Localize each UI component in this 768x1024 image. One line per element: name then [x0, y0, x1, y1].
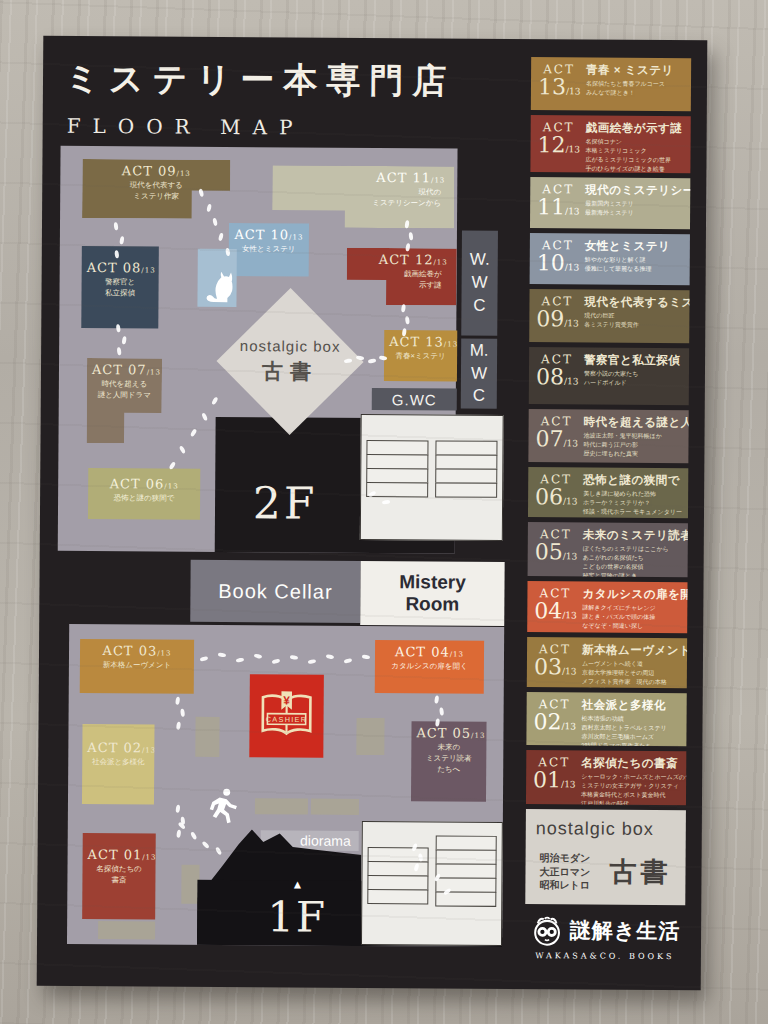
act-name: 名探偵たちの書斎	[87, 864, 150, 886]
sidebar-act-panel-03: ACT0313新本格ムーヴメントムーヴメントへ続く道京都大学推理研とその周辺メフ…	[527, 637, 687, 688]
logo-name: 謎解き生活	[570, 916, 681, 945]
nostalgic-box-label: nostalgic box	[240, 337, 341, 355]
footprint-icon	[175, 696, 180, 704]
act-number: ACT1213	[537, 120, 579, 169]
floor-2-void	[215, 417, 456, 554]
footprint-icon	[344, 658, 353, 664]
footprint-icon	[122, 336, 127, 345]
map-area-act03: ACT 0313 新本格ムーヴメント	[80, 639, 194, 694]
footprint-icon	[175, 804, 180, 812]
footprint-icon	[379, 355, 388, 360]
sidebar-act-panel-05: ACT0513未来のミステリ読者たちへぼくたちのミステリはここからあこがれの名探…	[528, 522, 688, 577]
footprint-icon	[411, 843, 418, 852]
footprint-icon	[176, 829, 181, 837]
footprint-icon	[272, 658, 281, 664]
floor-1-label: 1F	[247, 892, 347, 942]
map-area-act10-annex	[197, 249, 236, 307]
entrance-arrow-icon: ▲	[247, 877, 347, 892]
act-name: 社会派と多様化	[87, 757, 149, 768]
act-number: ACT0413	[534, 586, 576, 629]
act-description: 戯画絵巻が示す謎名探偵コナン本格ミステリコミック広がるミステリコミックの世界手の…	[585, 120, 683, 170]
running-person-icon	[203, 784, 243, 826]
act-label: ACT 1013	[234, 227, 304, 242]
store-logo: 謎解き生活 WAKASA&CO. BOOKS	[525, 913, 685, 961]
floor-2-label: 2F	[225, 477, 345, 529]
map-area-act10: ACT 1013 女性とミステリ	[229, 223, 309, 277]
shelf-grid-2f	[360, 414, 504, 541]
footprint-icon	[236, 657, 245, 663]
act-name: 現代のミステリシーンから	[277, 186, 449, 209]
footprint-icon	[401, 304, 406, 312]
floor-map-heading: FLOOR MAP	[67, 114, 305, 140]
footprint-icon	[434, 695, 439, 703]
act-name: 恐怖と謎の狭間で	[93, 493, 195, 505]
diorama-label: diorama	[261, 830, 359, 851]
footprint-icon	[201, 412, 208, 421]
footprint-icon	[190, 428, 197, 437]
book-cellar-banner: Book Cellar	[190, 560, 360, 623]
svg-text:CASHIER: CASHIER	[266, 714, 308, 723]
act-legend-list: ACT1313青春 × ミステリ名探偵たちと青春フルコースみんなで謎とき！ACT…	[531, 39, 691, 40]
map-area-act12: ACT 1213 戯画絵巻が示す謎	[346, 248, 456, 306]
footprint-icon	[168, 461, 176, 470]
act-description: 時代を超える謎と人間ドラマ池波正太郎・鬼平犯科帳ほか時代に舞う江戸の影歴史に埋も…	[583, 414, 681, 460]
act-description: 未来のミステリ読者たちへぼくたちのミステリはここからあこがれの名探偵たちこどもの…	[583, 527, 681, 574]
footprint-icon	[180, 708, 185, 716]
act-description: 女性とミステリ鮮やかな彩りと解く謎優雅にして華麗なる推理	[585, 238, 683, 282]
footprint-icon	[117, 347, 122, 355]
footprint-icon	[439, 707, 444, 715]
act-name: カタルシスの扉を開く	[380, 661, 479, 673]
sidebar-act-panel-13: ACT1313青春 × ミステリ名探偵たちと青春フルコースみんなで謎とき！	[531, 57, 691, 111]
footprint-icon	[176, 721, 181, 729]
cashier-book-icon: ¥ CASHIER	[257, 689, 315, 743]
map-area-act04: ACT 0413 カタルシスの扉を開く	[375, 640, 484, 694]
footprint-icon	[344, 358, 353, 363]
sidebar-act-panel-06: ACT0613恐怖と謎の狭間で美しき謎に秘められた恐怖ホラーか？ミステリか？怪談…	[528, 467, 688, 518]
sidebar-act-panel-12: ACT1213戯画絵巻が示す謎名探偵コナン本格ミステリコミック広がるミステリコミ…	[530, 115, 690, 173]
footprint-icon	[116, 324, 121, 332]
map-area-act02: ACT 0213 社会派と多様化	[82, 724, 155, 805]
shelf-block	[195, 717, 219, 757]
act-name: 時代を超える謎と人間ドラマ	[92, 379, 157, 401]
footprint-icon	[179, 445, 186, 454]
kosho-label: 古書	[262, 357, 318, 385]
act-description: 警察官と私立探偵警察小説の大家たちハードボイルド	[584, 352, 682, 402]
act-number: ACT1013	[537, 238, 579, 281]
shelf-block	[98, 921, 155, 939]
footprint-icon	[405, 316, 410, 324]
sidebar-act-panel-02: ACT0213社会派と多様化松本清張の功績西村京太郎とトラベルミステリ赤川次郎と…	[526, 692, 686, 746]
act-label: ACT 0613	[93, 476, 195, 492]
footprint-icon	[201, 841, 209, 850]
footprint-icon	[290, 655, 299, 660]
act-label: ACT 0513	[416, 725, 481, 740]
footprint-icon	[215, 846, 222, 855]
act-number: ACT0313	[534, 642, 576, 684]
cat-icon	[201, 269, 232, 305]
logo-subtitle: WAKASA&CO. BOOKS	[525, 951, 685, 961]
footprint-icon	[356, 355, 365, 360]
shelf-grid-1f	[361, 821, 503, 946]
act-number: ACT0913	[536, 294, 578, 339]
act-name: 警察官と私立探偵	[86, 277, 153, 299]
act-description: 現代のミステリシーンから最新国内ミステリ最新海外ミステリ	[585, 182, 683, 226]
mistery-room-banner: MisteryRoom	[360, 561, 504, 626]
sidebar-nostalgic-panel: nostalgic box 明治モダン 大正ロマン 昭和レトロ 古書	[525, 809, 686, 905]
mens-wc-area: M.WC	[461, 339, 497, 409]
act-description: 青春 × ミステリ名探偵たちと青春フルコースみんなで謎とき！	[586, 62, 684, 108]
floor-1-void	[197, 880, 502, 947]
footprint-icon	[206, 204, 212, 213]
footprint-icon	[405, 243, 410, 252]
act-description: 社会派と多様化松本清張の功績西村京太郎とトラベルミステリ赤川次郎と三毛猫ホームズ…	[581, 697, 679, 743]
footprint-icon	[362, 654, 371, 659]
act-number: ACT0813	[536, 352, 578, 401]
map-area-act13: ACT 1313 青春×ミステリ	[384, 330, 457, 382]
act-name: 青春×ミステリ	[389, 351, 452, 362]
womens-wc-area: W.WC	[461, 231, 498, 336]
act-description: カタルシスの扉を開く謎解きクイズにチャレンジ謎とき・パズルで頭の体操なぞなぞ・間…	[582, 586, 680, 630]
act-name: 現代を代表するミステリ作家	[87, 180, 225, 203]
act-name: 新本格ムーヴメント	[85, 660, 189, 672]
kosho-label: 古書	[609, 854, 671, 890]
act-legend-sidebar: ACT1313青春 × ミステリ名探偵たちと青春フルコースみんなで謎とき！ACT…	[525, 39, 692, 990]
footprint-trail-2f	[61, 146, 458, 149]
act-label: ACT 0813	[87, 260, 154, 275]
act-number: ACT1113	[537, 182, 579, 225]
footprint-icon	[368, 490, 377, 497]
footprint-icon	[418, 853, 423, 862]
diorama-mountain	[197, 822, 362, 946]
act-label: ACT 0213	[87, 740, 149, 755]
cashier-area: ¥ CASHIER	[249, 674, 324, 758]
act-number: ACT0713	[535, 414, 577, 459]
shelf-block	[356, 718, 384, 755]
sidebar-act-panel-01: ACT0113名探偵たちの書斎シャーロック・ホームズとホームズのライバルたちミス…	[526, 750, 686, 805]
footprint-icon	[212, 218, 218, 227]
map-area-act07: ACT 0713 時代を超える謎と人間ドラマ	[86, 358, 162, 444]
map-area-act09: ACT 0913 現代を代表するミステリ作家	[82, 159, 230, 219]
act-name: 女性とミステリ	[234, 244, 304, 255]
wall-background: ミステリー本専門店 FLOOR MAP 2F ACT 0913 現代を代表するミ…	[0, 0, 768, 1024]
act-label: ACT 0713	[92, 362, 157, 377]
floor-2-map: 2F ACT 0913 現代を代表するミステリ作家 ACT 1113 現代のミス…	[58, 146, 458, 554]
footprint-icon	[180, 816, 185, 824]
footprint-icon	[211, 396, 218, 405]
sidebar-act-panel-10: ACT1013女性とミステリ鮮やかな彩りと解く謎優雅にして華麗なる推理	[530, 233, 690, 285]
nostalgic-box-title: nostalgic box	[536, 818, 676, 840]
general-wc-area: G.WC	[372, 388, 457, 411]
map-area-act08: ACT 0813 警察官と私立探偵	[81, 246, 159, 329]
footprint-icon	[254, 653, 263, 659]
footprint-icon	[326, 654, 335, 660]
act-name: 戯画絵巻が示す謎	[352, 269, 452, 291]
footprint-trail-1f	[70, 559, 505, 562]
map-area-act05: ACT 0513 未来のミステリ読者たちへ	[411, 721, 487, 802]
footprint-icon	[178, 821, 186, 830]
footprint-icon	[443, 887, 452, 895]
shelf-block	[311, 799, 359, 815]
sidebar-act-panel-11: ACT1113現代のミステリシーンから最新国内ミステリ最新海外ミステリ	[530, 177, 690, 229]
footprint-icon	[190, 831, 197, 840]
sidebar-act-panel-04: ACT0413カタルシスの扉を開く謎解きクイズにチャレンジ謎とき・パズルで頭の体…	[527, 581, 687, 633]
floor-1-area	[67, 624, 504, 947]
nostalgic-box-eras: 明治モダン 大正ロマン 昭和レトロ	[539, 851, 590, 892]
footprint-icon	[200, 656, 209, 662]
footprint-icon	[404, 220, 409, 228]
act-label: ACT 0413	[380, 644, 479, 660]
sidebar-act-panel-08: ACT0813警察官と私立探偵警察小説の大家たちハードボイルド	[529, 347, 689, 405]
footprint-icon	[218, 652, 227, 657]
footprint-icon	[308, 659, 317, 665]
footprint-icon	[225, 248, 230, 257]
footprint-icon	[113, 222, 118, 230]
act-label: ACT 1213	[352, 252, 452, 268]
footprint-icon	[408, 232, 413, 240]
footprint-icon	[382, 499, 391, 504]
act-description: 恐怖と謎の狭間で美しき謎に秘められた恐怖ホラーか？ミステリか？怪談・現代ホラー …	[583, 472, 681, 515]
act-number: ACT0513	[535, 527, 577, 573]
act-number: ACT0613	[535, 472, 577, 514]
map-area-act06: ACT 0613 恐怖と謎の狭間で	[88, 468, 200, 520]
shelf-block	[255, 798, 308, 814]
footprint-icon	[435, 718, 440, 726]
footprint-icon	[198, 188, 204, 197]
act-label: ACT 0313	[85, 643, 189, 659]
owl-mascot-icon	[530, 913, 564, 947]
footprint-icon	[119, 236, 124, 245]
act-label: ACT 1313	[389, 334, 452, 349]
act-label: ACT 0913	[87, 163, 225, 179]
sidebar-act-panel-07: ACT0713時代を超える謎と人間ドラマ池波正太郎・鬼平犯科帳ほか時代に舞う江戸…	[528, 409, 688, 463]
shelf-block	[181, 865, 199, 904]
act-label: ACT 0113	[88, 847, 151, 862]
floor-map-poster: ミステリー本専門店 FLOOR MAP 2F ACT 0913 現代を代表するミ…	[37, 36, 708, 991]
footprint-icon	[402, 328, 407, 336]
svg-text:¥: ¥	[283, 693, 290, 707]
footprint-icon	[218, 233, 224, 242]
act-number: ACT0113	[533, 755, 575, 801]
sidebar-act-panel-09: ACT0913現代を代表するミステリ作家現代の巨匠各ミステリ賞受賞作	[529, 289, 689, 343]
floor-1-map: Book Cellar MisteryRoom ACT 0313 新本格ムーヴメ…	[67, 559, 505, 947]
act-description: 名探偵たちの書斎シャーロック・ホームズとホームズのライバルたちミステリの女王アガ…	[581, 755, 679, 802]
act-name: 未来のミステリ読者たちへ	[416, 742, 481, 775]
footprint-icon	[368, 358, 377, 364]
footprint-icon	[434, 873, 441, 882]
map-area-act11: ACT 1113 現代のミステリシーンから	[272, 165, 454, 228]
act-description: 現代を代表するミステリ作家現代の巨匠各ミステリ賞受賞作	[584, 294, 682, 340]
nostalgic-box-area: nostalgic box 古書	[217, 288, 364, 435]
act-number: ACT0213	[533, 697, 575, 742]
act-number: ACT1313	[538, 62, 580, 107]
store-title: ミステリー本専門店	[65, 56, 455, 105]
map-area-act01: ACT 0113 名探偵たちの書斎	[82, 833, 156, 920]
act-description: 新本格ムーヴメントムーヴメントへ続く道京都大学推理研とその周辺メフィスト賞作家 …	[582, 642, 680, 685]
footprint-icon	[414, 863, 420, 872]
act-label: ACT 1113	[277, 169, 449, 185]
footprint-icon	[114, 250, 119, 258]
